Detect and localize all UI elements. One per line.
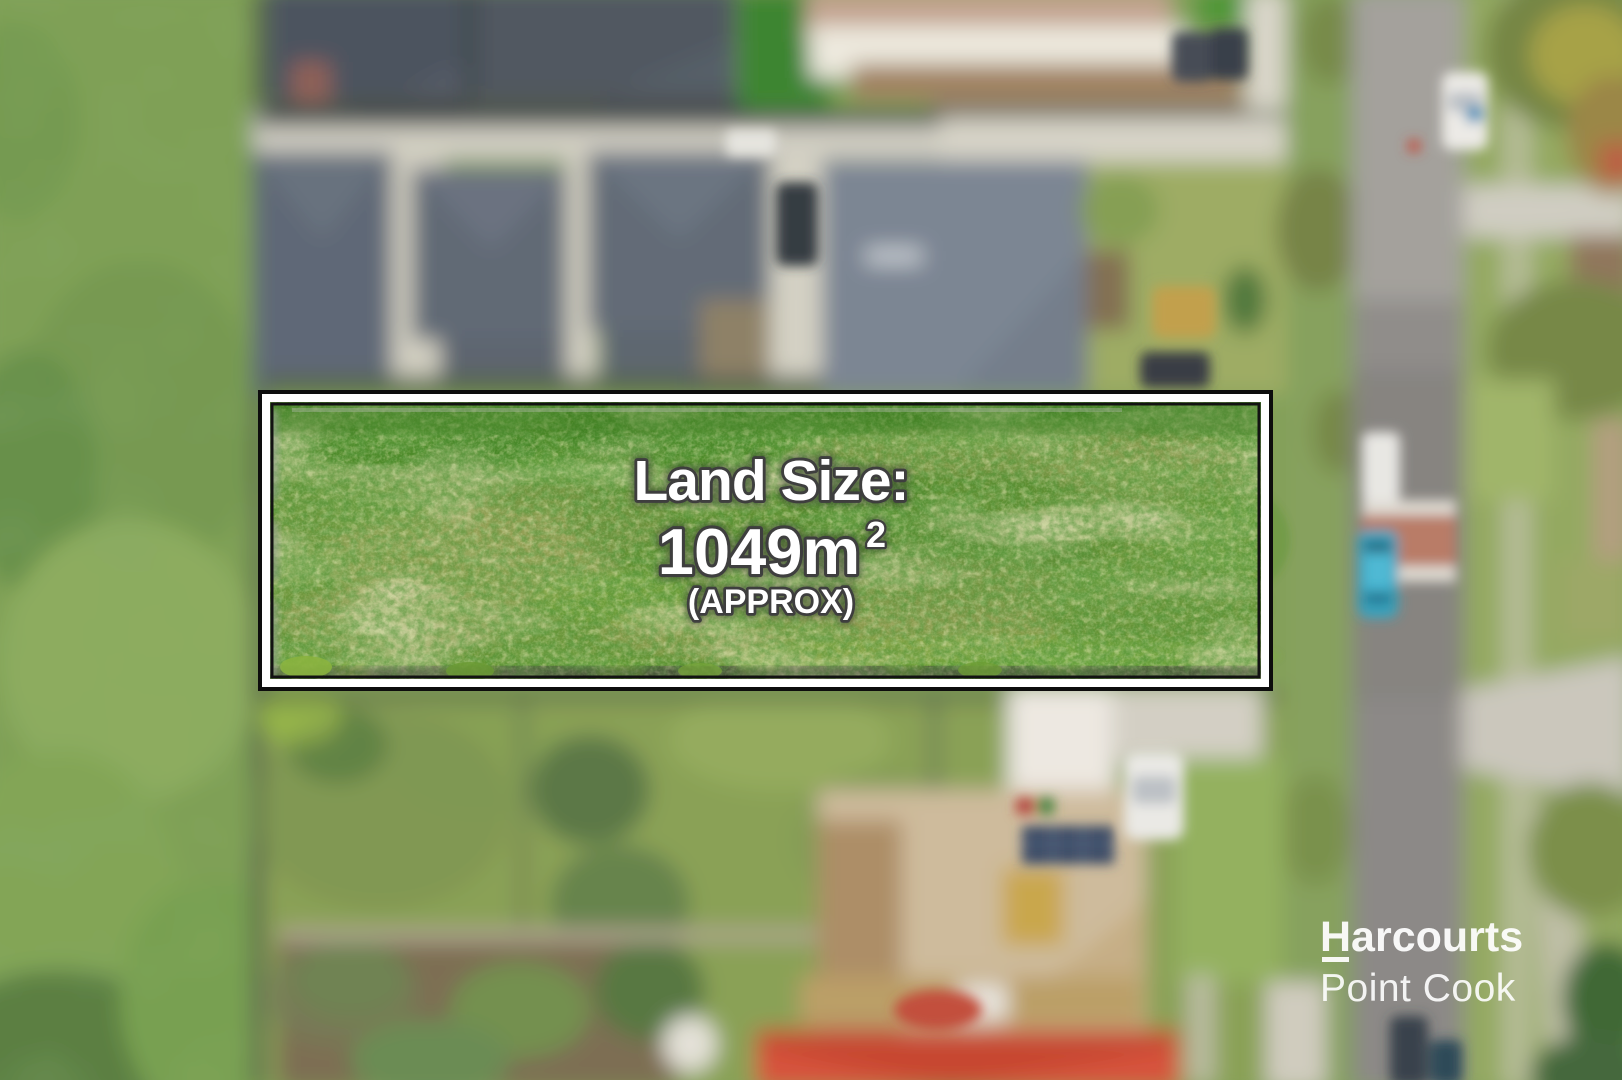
- svg-text:Land Size:: Land Size:: [633, 449, 908, 513]
- svg-text:Point Cook: Point Cook: [1320, 967, 1516, 1010]
- svg-text:2: 2: [866, 514, 886, 555]
- svg-text:(APPROX): (APPROX): [688, 583, 854, 621]
- svg-text:1049m: 1049m: [658, 515, 860, 588]
- svg-text:Harcourts: Harcourts: [1320, 913, 1523, 961]
